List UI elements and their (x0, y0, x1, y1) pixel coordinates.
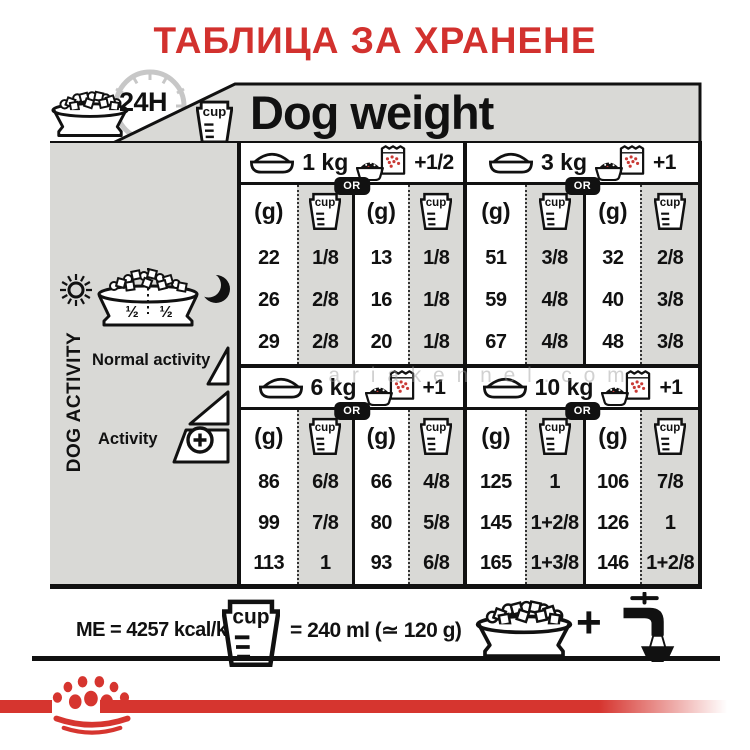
half-portion-bowl-icon: ½ ½ (92, 266, 204, 336)
cup-header (642, 185, 698, 237)
table-cell: 32 (586, 237, 641, 279)
table-cell: 2/8 (299, 322, 353, 364)
measuring-cup-icon (196, 99, 233, 144)
table-cell: 106 (586, 462, 641, 503)
feeding-table-sheet: cup (0, 0, 750, 750)
table-cell: 1/8 (410, 279, 464, 321)
table-cell: 1/8 (410, 237, 464, 279)
table-cell: 99 (241, 503, 297, 544)
activity-triangle-small (206, 346, 230, 386)
table-cell: 4/8 (527, 322, 583, 364)
table-cell: 26 (241, 279, 297, 321)
table-cell: 3/8 (642, 322, 698, 364)
measuring-cup-icon (539, 191, 571, 231)
grams-column: (g) 125 145 165 (467, 410, 525, 584)
table-cell: 93 (355, 543, 408, 584)
table-cell: 1 (299, 543, 353, 584)
table-cell: 29 (241, 322, 297, 364)
table-cell: 20 (355, 322, 408, 364)
table-cell: 6/8 (410, 543, 464, 584)
cups-column: 3/8 4/8 4/8 (525, 185, 583, 364)
grams-header: (g) (467, 185, 525, 237)
dog-bowl-icon (259, 376, 303, 399)
table-cell: 145 (467, 503, 525, 544)
table-cell: 13 (355, 237, 408, 279)
measuring-cup-icon (654, 191, 686, 231)
wet-food-sachet-icon (365, 369, 415, 406)
red-stripe-left (0, 700, 52, 713)
section-header: 6 kg +1 OR (241, 368, 463, 410)
grams-column: (g) 32 40 48 (583, 185, 641, 364)
cups-column: 6/8 7/8 1 (297, 410, 353, 584)
extra-portion-label: +1 (659, 376, 682, 400)
table-cell: 40 (586, 279, 641, 321)
grams-column: (g) 106 126 146 (583, 410, 641, 584)
or-badge: OR (565, 402, 601, 420)
table-cell: 3/8 (642, 279, 698, 321)
weight-label: 1 kg (302, 149, 348, 176)
extra-portion-label: +1 (653, 151, 676, 175)
table-cell: 7/8 (299, 503, 353, 544)
table-cell: 125 (467, 462, 525, 503)
half-right-label: ½ (159, 304, 172, 321)
measuring-cup-icon (309, 416, 341, 456)
cup-equivalence-label: = 240 ml (≃ 120 g) (290, 618, 461, 643)
or-badge: OR (334, 402, 370, 420)
extra-portion-label: +1/2 (414, 151, 453, 175)
normal-activity-label: Normal activity (92, 351, 210, 370)
table-cell: 165 (467, 543, 525, 584)
table-cell: 126 (586, 503, 641, 544)
measuring-cup-icon (420, 416, 452, 456)
table-cell: 80 (355, 503, 408, 544)
table-bottom-border (50, 584, 702, 589)
table-cell: 1 (527, 462, 583, 503)
moon-icon (200, 271, 232, 307)
dog-bowl-icon (489, 151, 533, 174)
cups-column: 1/8 2/8 2/8 (297, 185, 353, 364)
measuring-cup-icon (420, 191, 452, 231)
weight-label: 6 kg (311, 374, 357, 401)
table-cell: 4/8 (527, 279, 583, 321)
grams-column: (g) 66 80 93 (352, 410, 408, 584)
cups-column: 7/8 1 1+2/8 (640, 410, 698, 584)
grams-column: (g) 22 26 29 (241, 185, 297, 364)
cup-header (410, 185, 464, 237)
or-badge: OR (565, 177, 601, 195)
grams-header: (g) (241, 185, 297, 237)
weight-section-3kg: 3 kg +1 OR (g) 51 59 67 3/8 4/8 4/8 (g) … (467, 143, 702, 368)
table-cell: 2/8 (642, 237, 698, 279)
metabolizable-energy-label: ME = 4257 kcal/kg (76, 619, 238, 642)
section-body: (g) 125 145 165 1 1+2/8 1+3/8 (g) 106 12… (467, 410, 698, 584)
table-cell: 59 (467, 279, 525, 321)
table-cell: 6/8 (299, 462, 353, 503)
table-cell: 1+2/8 (642, 543, 698, 584)
table-cell: 16 (355, 279, 408, 321)
activity-label: Activity (98, 430, 158, 449)
table-cell: 1 (642, 503, 698, 544)
table-cell: 1+3/8 (527, 543, 583, 584)
cups-column: 1/8 1/8 1/8 (408, 185, 464, 364)
table-cell: 66 (355, 462, 408, 503)
dog-weight-title: Dog weight (250, 85, 493, 140)
weight-section-10kg: 10 kg +1 OR (g) 125 145 165 1 1+2/8 1+3/… (467, 368, 702, 584)
page-title: ТАБЛИЦА ЗА ХРАНЕНЕ (0, 20, 750, 62)
table-cell: 1+2/8 (527, 503, 583, 544)
measuring-cup-icon (654, 416, 686, 456)
section-body: (g) 86 99 113 6/8 7/8 1 (g) 66 80 93 4/8… (241, 410, 463, 584)
measuring-cup-icon (309, 191, 341, 231)
table-cell: 51 (467, 237, 525, 279)
table-cell: 86 (241, 462, 297, 503)
grams-column: (g) 51 59 67 (467, 185, 525, 364)
section-body: (g) 51 59 67 3/8 4/8 4/8 (g) 32 40 48 2/… (467, 185, 698, 364)
cup-header (642, 410, 698, 462)
cups-column: 1 1+2/8 1+3/8 (525, 410, 583, 584)
weight-label: 10 kg (535, 374, 594, 401)
footer-rule (32, 656, 720, 661)
table-cell: 1/8 (410, 322, 464, 364)
extra-portion-label: +1 (423, 376, 446, 400)
activity-triangle-medium (188, 390, 230, 426)
table-cell: 7/8 (642, 462, 698, 503)
sun-icon (56, 270, 96, 310)
table-cell: 67 (467, 322, 525, 364)
grams-column: (g) 13 16 20 (352, 185, 408, 364)
wet-food-sachet-icon (356, 144, 406, 181)
plus-circle-icon (184, 424, 216, 456)
table-cell: 3/8 (527, 237, 583, 279)
wet-food-sachet-icon (601, 369, 651, 406)
half-left-label: ½ (125, 304, 138, 321)
red-stripe-right (100, 700, 740, 713)
kibble-bowl-icon (474, 600, 574, 661)
plus-icon: + (576, 598, 602, 648)
weight-section-1kg: 1 kg +1/2 OR (g) 22 26 29 1/8 2/8 2/8 (g… (237, 143, 467, 368)
grams-column: (g) 86 99 113 (241, 410, 297, 584)
grams-header: (g) (467, 410, 525, 462)
table-cell: 2/8 (299, 279, 353, 321)
table-cell: 4/8 (410, 462, 464, 503)
section-header: 10 kg +1 OR (467, 368, 698, 410)
cup-header (410, 410, 464, 462)
measuring-cup-icon (539, 416, 571, 456)
water-tap-icon (612, 592, 698, 662)
section-header: 3 kg +1 OR (467, 143, 698, 185)
dog-bowl-icon (250, 151, 294, 174)
weight-label: 3 kg (541, 149, 587, 176)
table-cell: 22 (241, 237, 297, 279)
table-cell: 1/8 (299, 237, 353, 279)
table-cell: 5/8 (410, 503, 464, 544)
or-badge: OR (334, 177, 370, 195)
table-cell: 113 (241, 543, 297, 584)
cups-column: 2/8 3/8 3/8 (640, 185, 698, 364)
table-cell: 48 (586, 322, 641, 364)
section-body: (g) 22 26 29 1/8 2/8 2/8 (g) 13 16 20 1/… (241, 185, 463, 364)
wet-food-sachet-icon (595, 144, 645, 181)
dog-bowl-icon (483, 376, 527, 399)
dog-activity-label: DOG ACTIVITY (64, 317, 88, 487)
section-header: 1 kg +1/2 OR (241, 143, 463, 185)
grams-header: (g) (241, 410, 297, 462)
weight-section-6kg: 6 kg +1 OR (g) 86 99 113 6/8 7/8 1 (g) 6… (237, 368, 467, 584)
table-cell: 146 (586, 543, 641, 584)
cups-column: 4/8 5/8 6/8 (408, 410, 464, 584)
